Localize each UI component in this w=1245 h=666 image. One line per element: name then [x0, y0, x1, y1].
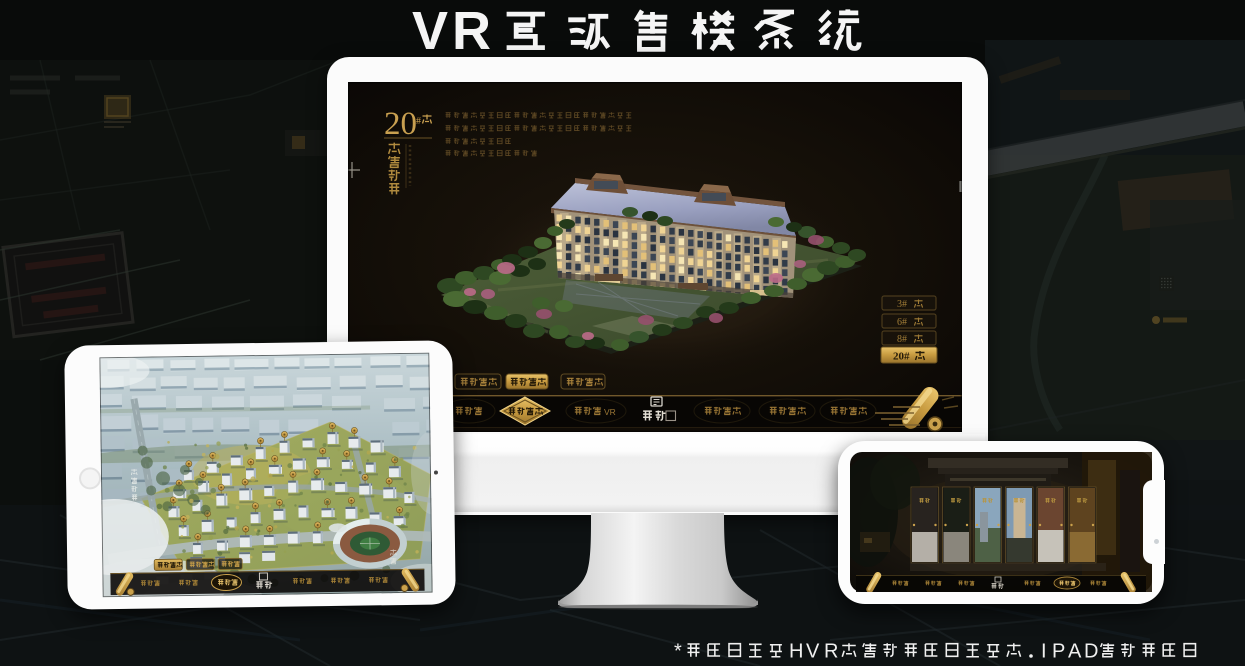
svg-text:#: #	[416, 116, 421, 127]
svg-text:H: H	[789, 641, 803, 663]
svg-text:6#: 6#	[897, 317, 907, 328]
svg-text:D: D	[1084, 641, 1098, 663]
svg-text:*: *	[674, 641, 682, 663]
svg-text:20#: 20#	[893, 351, 910, 363]
svg-text:VR: VR	[412, 2, 495, 61]
svg-text:R: R	[824, 641, 838, 663]
svg-text:V: V	[806, 641, 820, 663]
svg-text:3#: 3#	[897, 299, 907, 310]
svg-text:20: 20	[384, 106, 417, 142]
svg-text:VR: VR	[604, 407, 616, 417]
svg-text:A: A	[1068, 641, 1082, 663]
svg-text:I: I	[1041, 641, 1047, 663]
svg-text:P: P	[1052, 641, 1065, 663]
svg-text:8#: 8#	[897, 334, 907, 345]
